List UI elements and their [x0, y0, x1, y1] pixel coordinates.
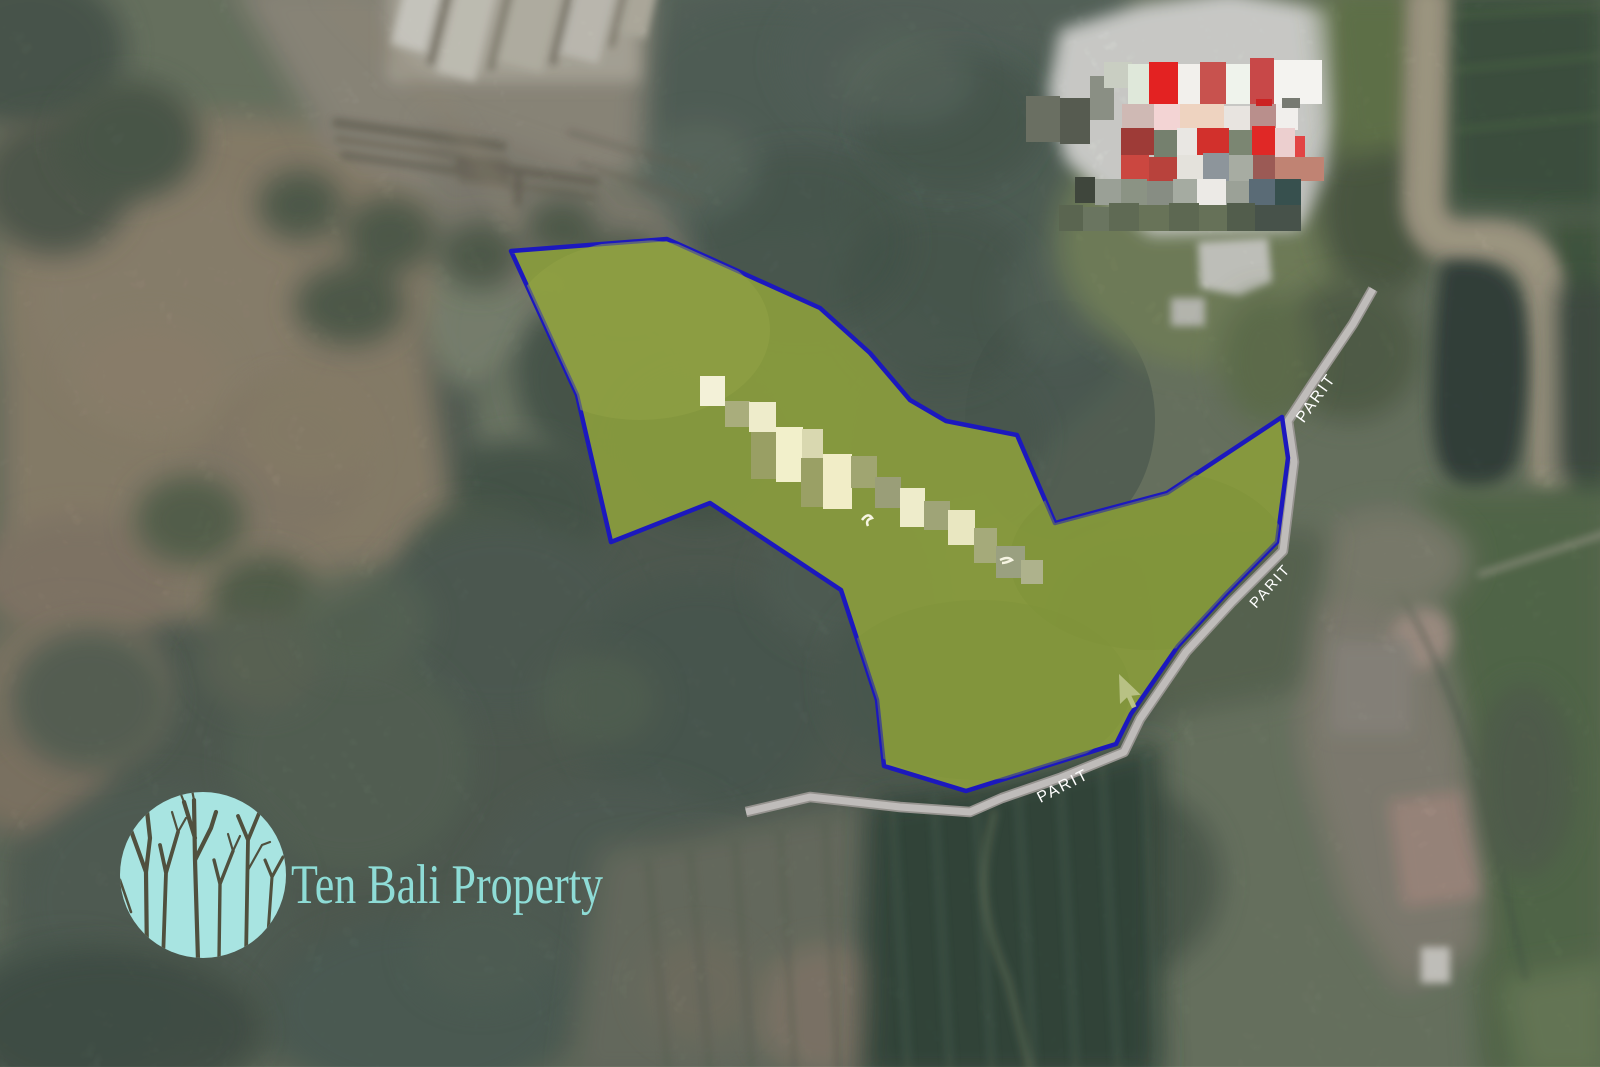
svg-text:Ten Bali Property: Ten Bali Property [291, 854, 603, 916]
